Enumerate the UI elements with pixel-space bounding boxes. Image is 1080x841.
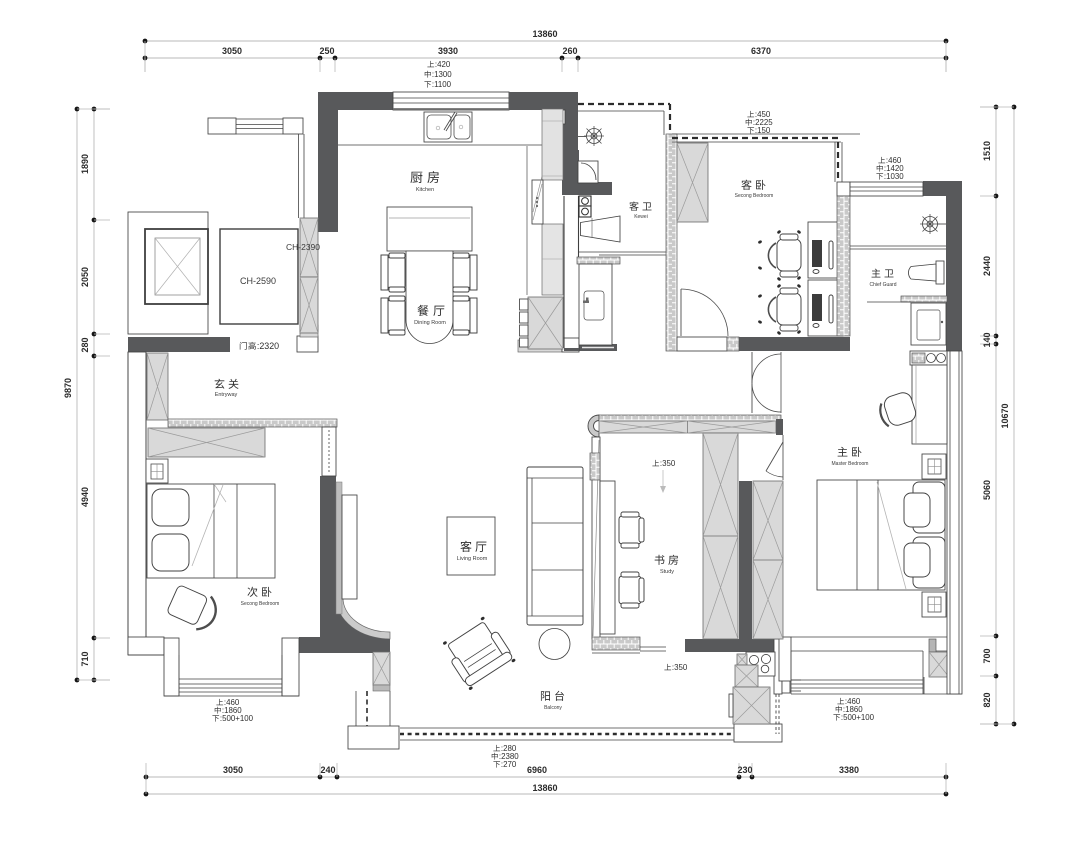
svg-text:2050: 2050 xyxy=(80,267,90,287)
svg-text:230: 230 xyxy=(737,765,752,775)
svg-text:1510: 1510 xyxy=(982,141,992,161)
svg-text:Chief Guard: Chief Guard xyxy=(870,282,897,288)
svg-text:CH-2590: CH-2590 xyxy=(240,276,276,286)
svg-text:5060: 5060 xyxy=(982,480,992,500)
svg-text:3930: 3930 xyxy=(438,46,458,56)
svg-text::420: :420 xyxy=(435,60,451,69)
svg-text:260: 260 xyxy=(562,46,577,56)
svg-text:Balcony: Balcony xyxy=(544,705,562,711)
svg-text:Secong Bedroom: Secong Bedroom xyxy=(241,601,280,607)
svg-text:3050: 3050 xyxy=(222,46,242,56)
svg-text::270: :270 xyxy=(501,760,517,769)
svg-text:1890: 1890 xyxy=(80,154,90,174)
svg-text::350: :350 xyxy=(672,663,688,672)
svg-text::500+100: :500+100 xyxy=(220,714,254,723)
svg-text:Entryway: Entryway xyxy=(215,392,238,398)
svg-text:10670: 10670 xyxy=(1000,403,1010,428)
svg-text:6960: 6960 xyxy=(527,765,547,775)
svg-text:250: 250 xyxy=(319,46,334,56)
svg-text:13860: 13860 xyxy=(532,29,557,39)
svg-text:Kewei: Kewei xyxy=(634,214,648,220)
svg-text::1100: :1100 xyxy=(432,80,452,89)
svg-text:Study: Study xyxy=(660,569,674,575)
svg-text:Master Bedroom: Master Bedroom xyxy=(832,461,869,467)
svg-text:3050: 3050 xyxy=(223,765,243,775)
svg-text:CH-2390: CH-2390 xyxy=(286,242,320,252)
svg-text:820: 820 xyxy=(982,692,992,707)
svg-text:710: 710 xyxy=(80,651,90,666)
svg-text:2440: 2440 xyxy=(982,256,992,276)
svg-text::1300: :1300 xyxy=(432,70,452,79)
svg-text:280: 280 xyxy=(80,337,90,352)
svg-text::2320: :2320 xyxy=(257,341,279,351)
svg-text:240: 240 xyxy=(320,765,335,775)
svg-text:Secong Bedroom: Secong Bedroom xyxy=(735,193,774,199)
svg-text:13860: 13860 xyxy=(532,783,557,793)
svg-text:Kitchen: Kitchen xyxy=(416,187,434,193)
svg-text:700: 700 xyxy=(982,648,992,663)
svg-text:Dining Room: Dining Room xyxy=(414,320,446,326)
svg-text:Living Room: Living Room xyxy=(457,556,488,562)
svg-text:4940: 4940 xyxy=(80,487,90,507)
svg-text:140: 140 xyxy=(982,332,992,347)
svg-text::350: :350 xyxy=(660,459,676,468)
svg-text:9870: 9870 xyxy=(63,378,73,398)
svg-text::150: :150 xyxy=(755,126,771,135)
svg-text::1030: :1030 xyxy=(884,172,904,181)
svg-text:6370: 6370 xyxy=(751,46,771,56)
svg-text:3380: 3380 xyxy=(839,765,859,775)
svg-text::500+100: :500+100 xyxy=(841,713,875,722)
